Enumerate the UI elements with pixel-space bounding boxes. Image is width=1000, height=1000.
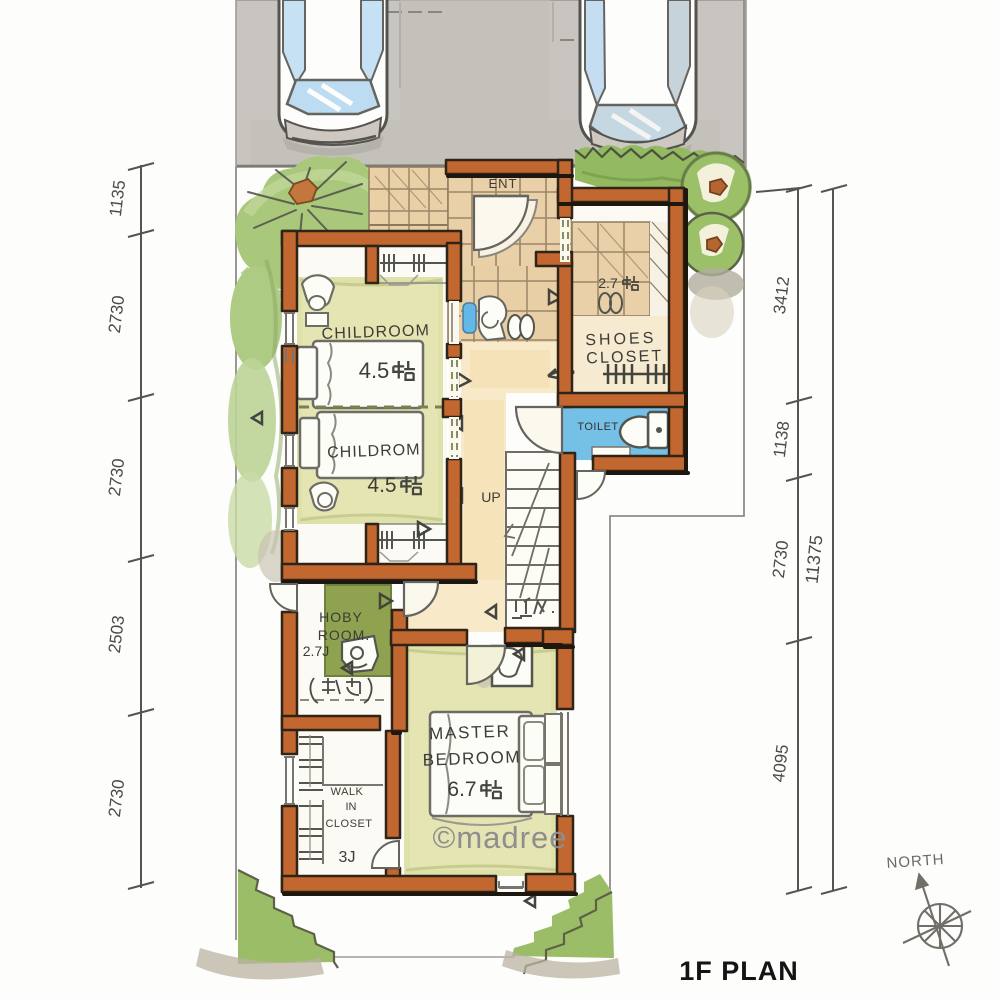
svg-text:UP: UP — [481, 489, 500, 505]
svg-text:4.5: 4.5 — [359, 358, 390, 383]
svg-text:BEDROOM: BEDROOM — [422, 747, 521, 769]
svg-text:6.7: 6.7 — [447, 778, 476, 801]
svg-text:ROOM.: ROOM. — [318, 627, 370, 643]
svg-text:WALK: WALK — [331, 786, 364, 798]
svg-text:SHOES: SHOES — [585, 330, 657, 349]
svg-text:CLOSET: CLOSET — [325, 818, 372, 830]
svg-text:2.7J: 2.7J — [303, 643, 329, 659]
svg-text:CHILDROM: CHILDROM — [327, 441, 421, 461]
svg-text:HOBY: HOBY — [319, 609, 363, 625]
svg-text:©madree: ©madree — [433, 820, 568, 855]
svg-text:2.7: 2.7 — [598, 275, 618, 291]
svg-text:ENT: ENT — [489, 176, 518, 191]
svg-text:CLOSET: CLOSET — [586, 348, 664, 368]
svg-text:4.5: 4.5 — [367, 474, 396, 497]
svg-text:3J: 3J — [339, 849, 356, 866]
svg-text:MASTER: MASTER — [429, 722, 511, 744]
svg-text:IN: IN — [346, 801, 357, 813]
svg-text:TOILET: TOILET — [577, 421, 618, 433]
svg-text:1F PLAN: 1F PLAN — [679, 956, 799, 986]
